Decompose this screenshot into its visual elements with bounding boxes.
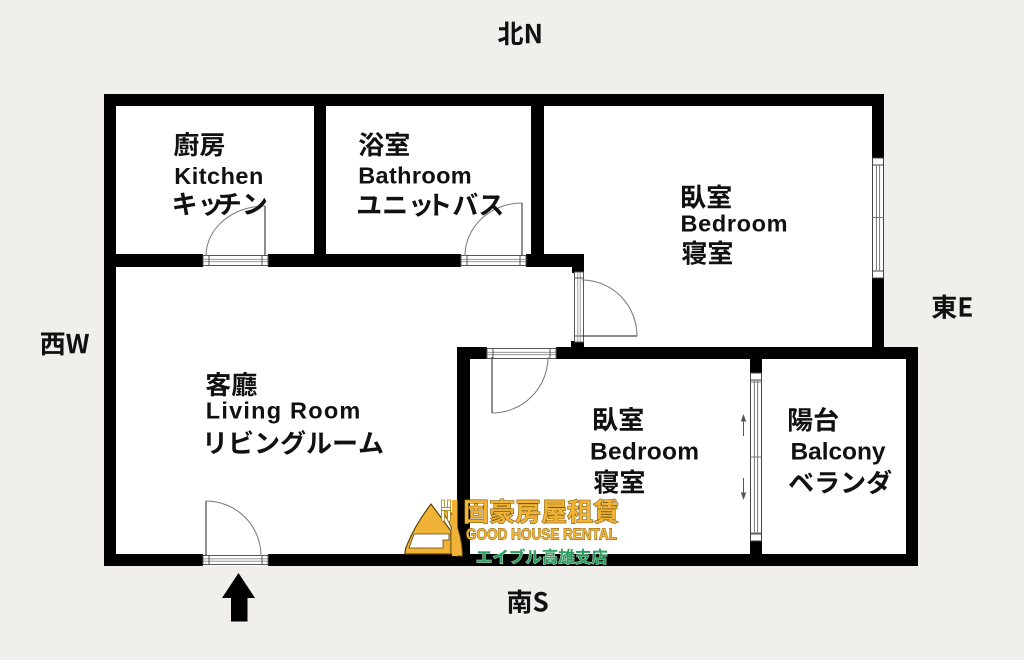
svg-text:Bathroom: Bathroom bbox=[358, 163, 472, 189]
svg-text:Bedroom: Bedroom bbox=[590, 438, 699, 465]
svg-text:Living Room: Living Room bbox=[206, 397, 360, 423]
svg-text:Kitchen: Kitchen bbox=[174, 163, 263, 189]
svg-text:Bedroom: Bedroom bbox=[681, 210, 788, 236]
svg-text:GOOD HOUSE RENTAL: GOOD HOUSE RENTAL bbox=[466, 527, 617, 544]
svg-text:Balcony: Balcony bbox=[791, 438, 886, 465]
